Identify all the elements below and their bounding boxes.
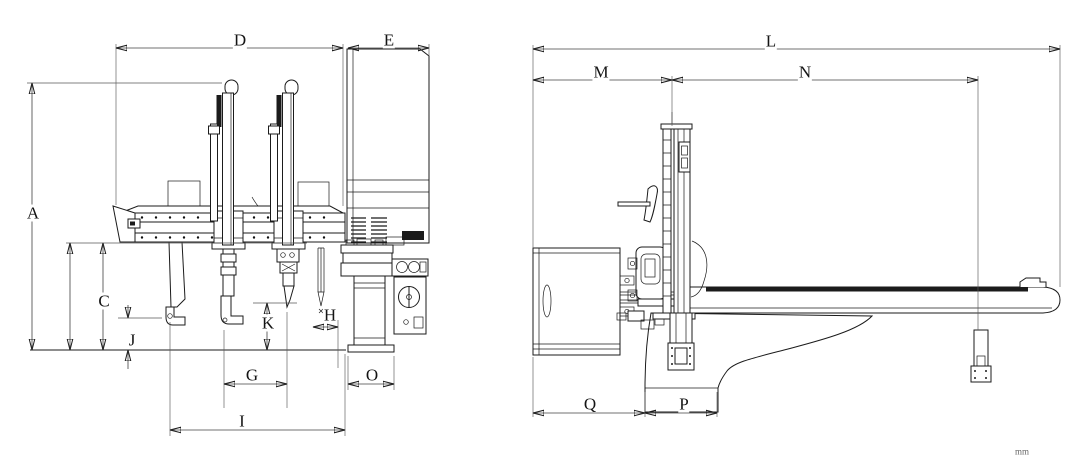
end-gripper-side [971, 330, 991, 382]
drawing-canvas [0, 0, 1092, 463]
dim-label-a: A [26, 205, 40, 222]
pencil-tool [318, 248, 324, 313]
traverse-beam-side [690, 278, 1060, 313]
dim-label-l: L [765, 33, 777, 50]
dim-label-c: C [97, 293, 110, 310]
dim-label-m: M [592, 64, 609, 81]
dim-label-d: D [233, 32, 247, 49]
dim-label-k: K [261, 315, 275, 332]
units-label: mm [1014, 448, 1030, 457]
vertical-arm-2 [269, 80, 306, 307]
dim-label-i: I [238, 413, 246, 430]
vertical-column-side [661, 112, 692, 313]
dim-label-e: E [383, 32, 395, 49]
dim-label-n: N [798, 64, 812, 81]
dim-label-g: G [245, 367, 259, 384]
side-view-machine [533, 112, 1060, 412]
engineering-drawing: D E A C J K H G O I L M N Q P mm [0, 0, 1092, 463]
dim-label-q: Q [583, 396, 597, 413]
pedestal-and-controller [341, 239, 428, 352]
vertical-arm-1 [209, 80, 246, 324]
dim-label-h: H [323, 307, 337, 324]
front-view-machine [30, 49, 429, 352]
dim-label-p: P [678, 396, 689, 413]
dim-label-o: O [365, 367, 379, 384]
cabinet [347, 49, 429, 245]
dim-label-j: J [128, 332, 137, 349]
gripper-hook [166, 242, 185, 325]
machine-body-side [533, 248, 634, 355]
